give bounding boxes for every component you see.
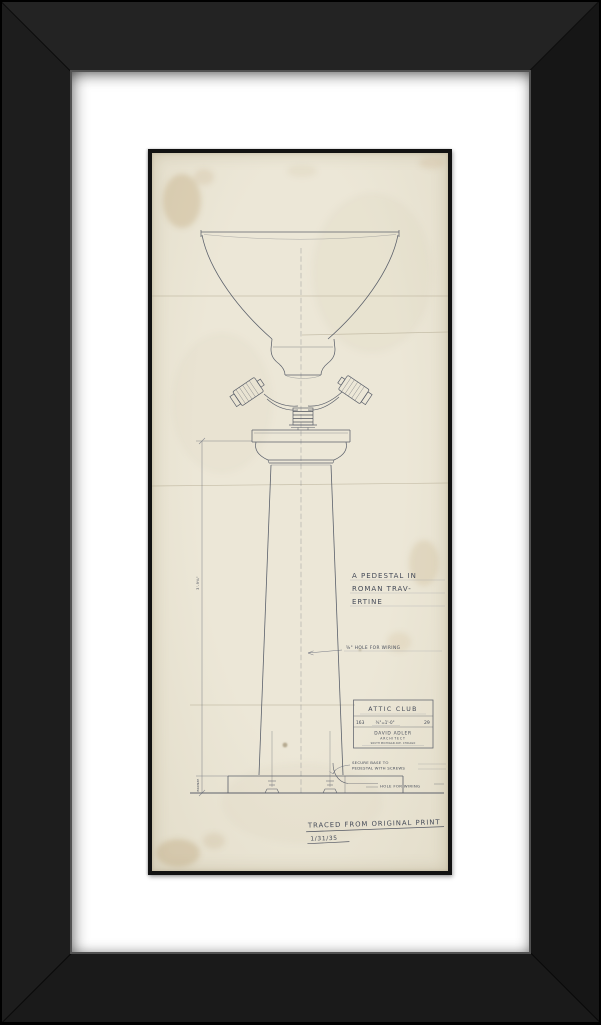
dimension-shaft-label: 3'-9¾" [196, 576, 200, 590]
drawing-paper: 3'-9¾" BRONZE A PEDESTAL IN ROMAN TRAV- … [152, 153, 448, 871]
pedestal-drawing: 3'-9¾" BRONZE A PEDESTAL IN ROMAN TRAV- … [152, 153, 448, 871]
title-block-job-number: 163 [356, 720, 365, 726]
note-secure-base-line-2: PEDESTAL WITH SCREWS [352, 766, 405, 771]
note-hole-for-wiring-lower: HOLE FOR WIRING [380, 784, 420, 789]
traced-date-label: 1/31/35 [310, 835, 338, 843]
title-line-1: A PEDESTAL IN [352, 572, 417, 580]
paper-stains [156, 157, 445, 867]
title-block-project: ATTIC CLUB [368, 706, 418, 713]
title-block: ATTIC CLUB 163 ¾"=1'-0" 29 DAVID ADLER A… [354, 700, 434, 748]
title-line-2: ROMAN TRAV- [352, 585, 412, 593]
title-block-scale: ¾"=1'-0" [376, 720, 395, 725]
note-hole-for-wiring-upper-label: ⅝" HOLE FOR WIRING [346, 645, 400, 651]
title-line-3: ERTINE [352, 598, 383, 606]
column-shaft [259, 465, 343, 775]
title-block-address: SOUTH MICHIGAN AVE. CHICAGO [371, 742, 416, 745]
title-block-architect-title: ARCHITECT [380, 737, 406, 741]
dimension-base-label: BRONZE [196, 778, 200, 791]
artwork-fillet: 3'-9¾" BRONZE A PEDESTAL IN ROMAN TRAV- … [148, 149, 452, 875]
paper-specks [283, 649, 362, 748]
right-socket [335, 373, 374, 407]
note-secure-base-line-1: SECURE BASE TO [352, 760, 389, 765]
traced-note: TRACED FROM ORIGINAL PRINT 1/31/35 [306, 818, 445, 844]
note-hole-for-wiring-upper: ⅝" HOLE FOR WIRING [308, 645, 442, 655]
title-block-sheet-number: 29 [424, 720, 430, 726]
